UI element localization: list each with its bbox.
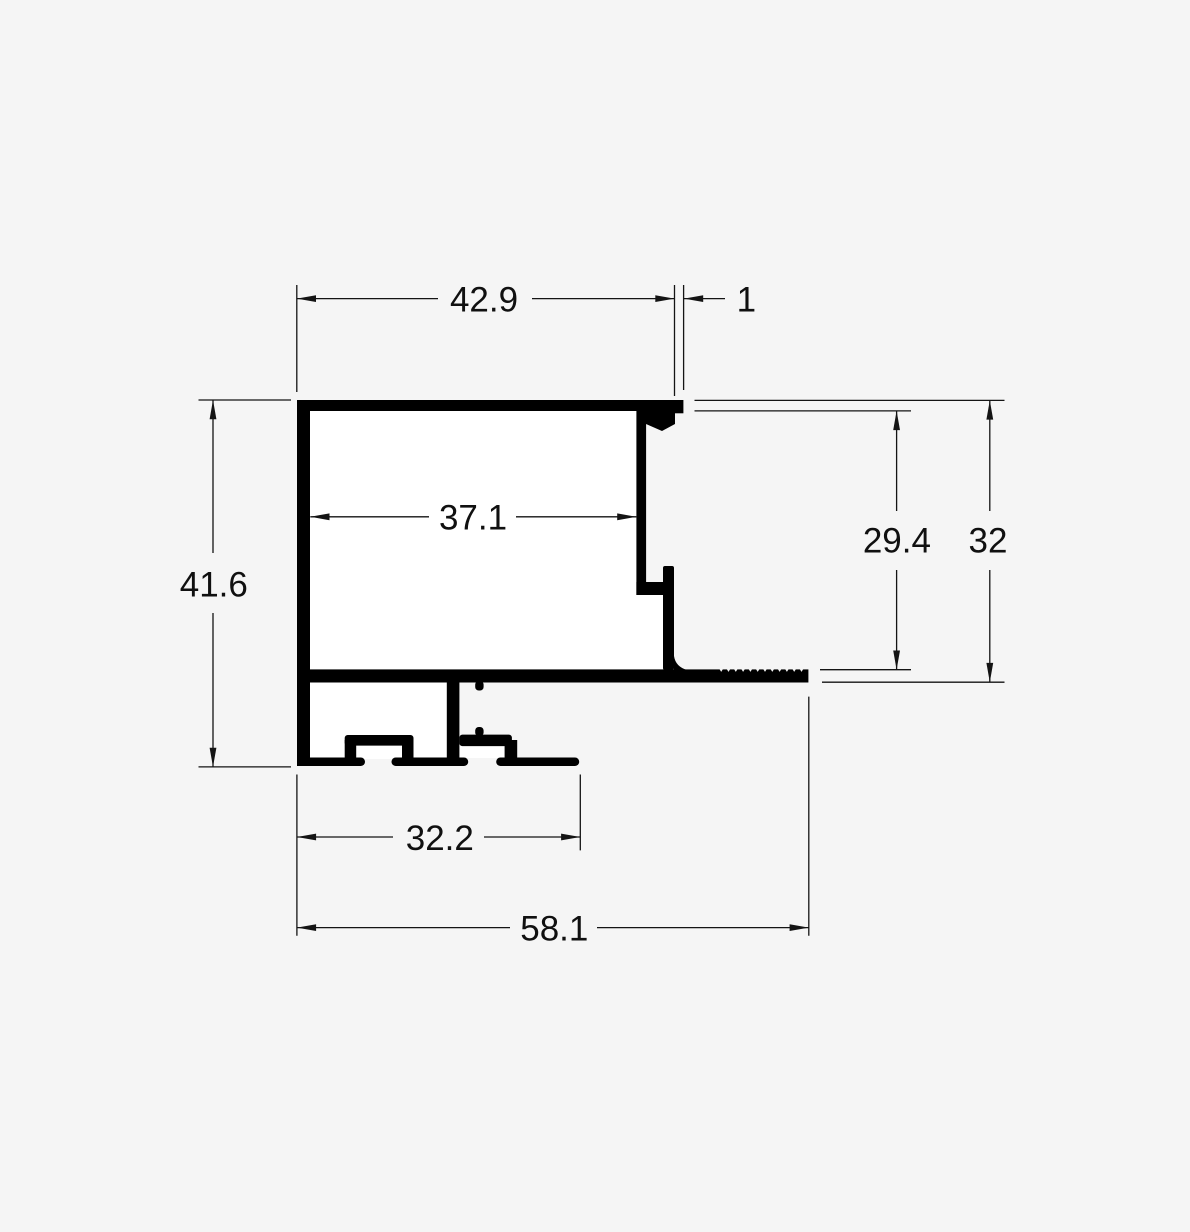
svg-text:42.9: 42.9 — [450, 281, 518, 320]
svg-text:29.4: 29.4 — [863, 522, 931, 561]
svg-text:41.6: 41.6 — [180, 566, 248, 605]
svg-text:32.2: 32.2 — [406, 819, 474, 858]
svg-text:32: 32 — [969, 522, 1008, 561]
svg-text:1: 1 — [737, 281, 756, 320]
svg-text:58.1: 58.1 — [520, 909, 588, 948]
svg-text:37.1: 37.1 — [439, 499, 507, 538]
